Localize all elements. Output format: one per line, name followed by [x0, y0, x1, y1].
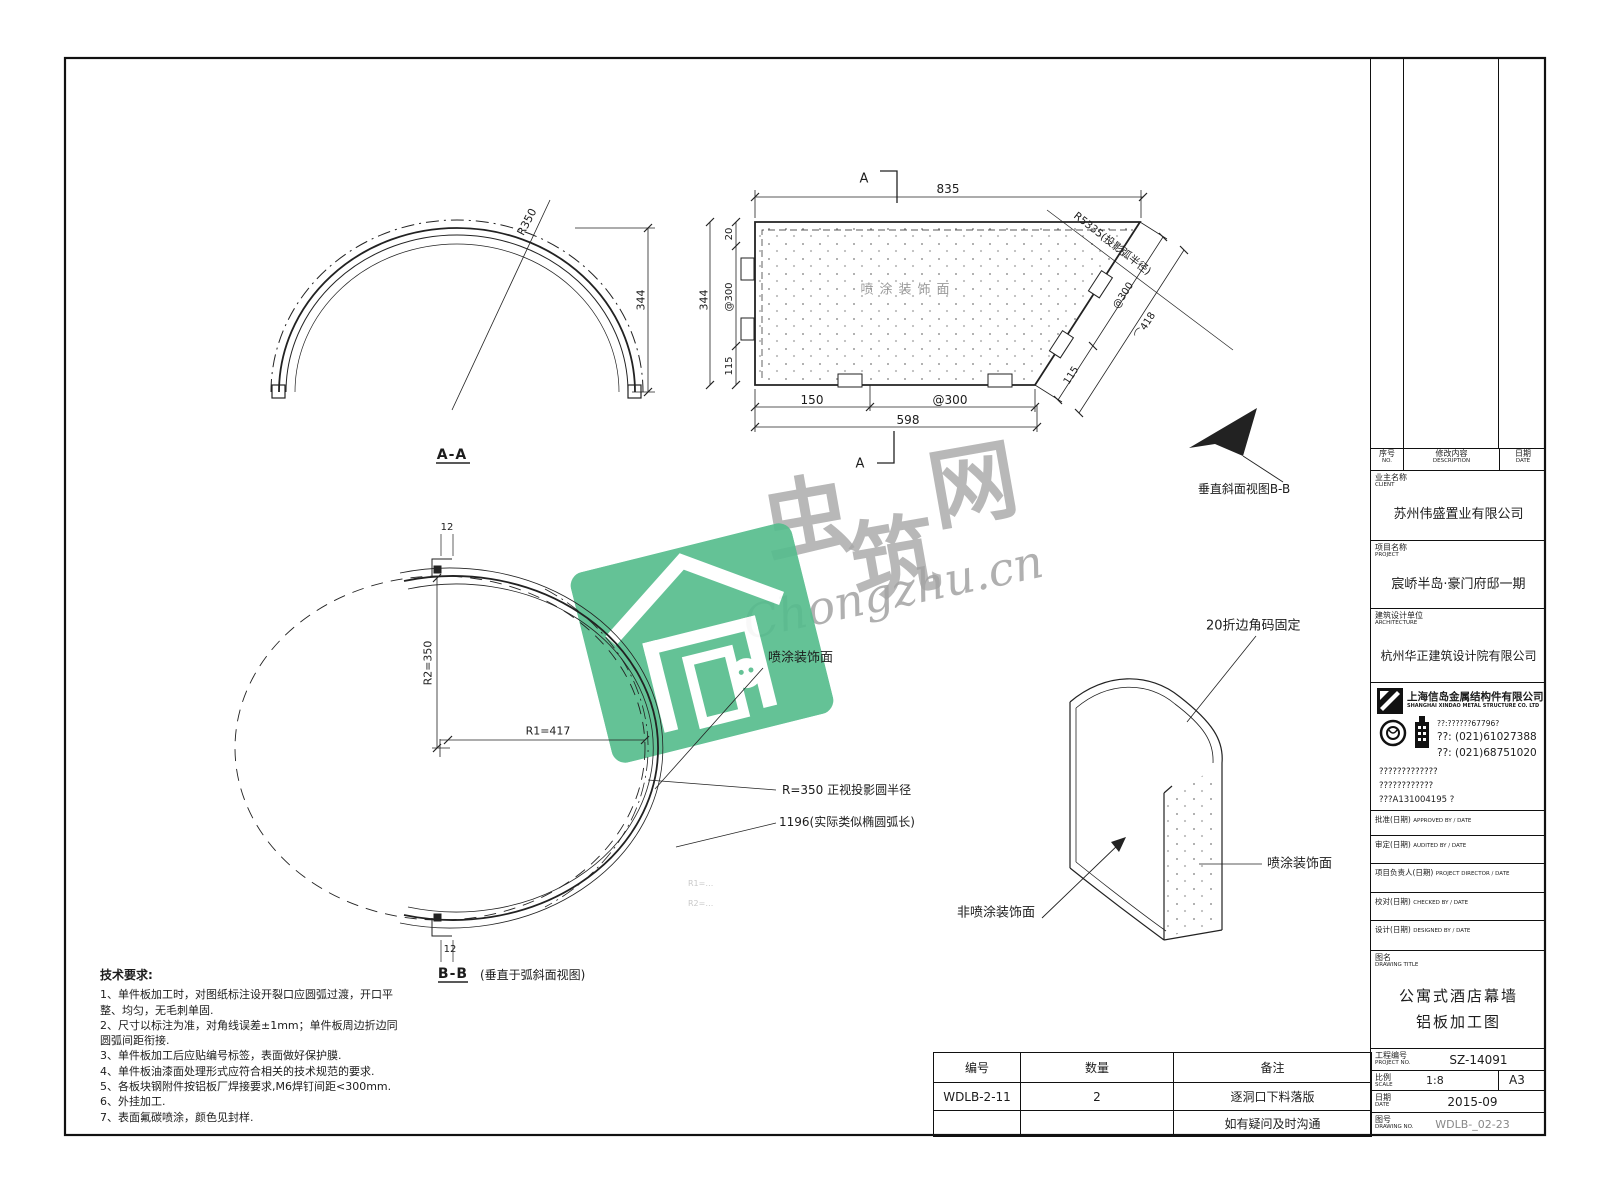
parts-header-qty: 数量 [1021, 1053, 1174, 1083]
title-block: 序号 NO. 修改内容 DESCRIPTION 日期 DATE 业主名称 CLI… [1370, 58, 1546, 1135]
bb-pointer-label: 垂直斜面视图B-B [1198, 483, 1290, 495]
client-cell: 业主名称 CLIENT 苏州伟盛置业有限公司 [1371, 470, 1546, 540]
note-line: 2、尺寸以标注为准，对角线误差±1mm；单件板周边折边同圆弧间距衔接. [100, 1018, 400, 1049]
bb-r1-dim: R1=417 [526, 726, 571, 737]
note-line: 5、各板块钢附件按铝板厂焊接要求,M6焊钉间距<300mm. [100, 1079, 400, 1094]
drawing-no-cell: 图号DRAWING NO. WDLB-_02-23 [1371, 1112, 1546, 1135]
note-line: 3、单件板加工后应贴编号标签，表面做好保护膜. [100, 1048, 400, 1063]
designed-row: 设计(日期) DESIGNED BY / DATE [1371, 920, 1546, 950]
view-direction-arrow [1189, 408, 1283, 482]
stamp-icon [1379, 719, 1407, 747]
approved-row: 批准(日期) APPROVED BY / DATE [1371, 810, 1546, 835]
plan-dim-at300-bottom: @300 [933, 394, 968, 406]
iso-fold-label: 20折边角码固定 [1206, 620, 1301, 633]
note-line: 1、单件板加工时，对图纸标注设开裂口应圆弧过渡，开口平整、均匀，无毛刺单固. [100, 987, 400, 1018]
date-cell: 日期DATE 2015-09 [1371, 1090, 1546, 1112]
plan-dim-20: 20 [725, 228, 735, 241]
project-director-row: 项目负责人(日期) PROJECT DIRECTOR / DATE [1371, 863, 1546, 892]
plan-section-marker-top: A [860, 173, 869, 186]
project-label: 项目名称 [1375, 543, 1546, 552]
bb-faint-note-2: R2=… [688, 900, 713, 908]
plan-dim-835: 835 [937, 183, 960, 195]
drawing-title-line1: 公寓式酒店幕墙 [1371, 985, 1546, 1006]
company-contact-4: ????????????? [1379, 767, 1438, 777]
bb-note-radius: R=350 正视投影圆半径 [782, 784, 911, 796]
plan-dim-598: 598 [897, 414, 920, 426]
plan-face-label: 喷涂装饰面 [860, 284, 955, 297]
parts-table: 编号 数量 备注 WDLB-2-11 2 逐洞口下料落版 如有疑问及时沟通 [933, 1052, 1372, 1137]
iso-coated-label: 喷涂装饰面 [1267, 858, 1332, 871]
client-label: 业主名称 [1375, 473, 1546, 482]
note-line: 6、外挂加工. [100, 1094, 400, 1109]
revision-col-line [1403, 58, 1404, 448]
table-row-qty: 2 [1021, 1083, 1174, 1111]
scale-cell: 比例SCALE 1:8 A3 [1371, 1070, 1546, 1090]
plan-dim-115-left: 115 [725, 356, 735, 375]
view-bb [235, 534, 776, 982]
date-value: 2015-09 [1385, 1095, 1560, 1109]
revision-col-line [1498, 58, 1499, 448]
company-tel: ??: (021)61027388 [1437, 731, 1537, 743]
checked-row: 校对(日期) CHECKED BY / DATE [1371, 892, 1546, 920]
technical-notes: 技术要求: 1、单件板加工时，对图纸标注设开裂口应圆弧过渡，开口平整、均匀，无毛… [100, 968, 400, 1125]
architecture-cell: 建筑设计单位 ARCHITECTURE 杭州华正建筑设计院有限公司 [1371, 608, 1546, 682]
plan-dim-at300-left: @300 [725, 282, 735, 311]
company-name: 上海信岛金属结构件有限公司 [1407, 689, 1544, 704]
company-fax: ??: (021)68751020 [1437, 747, 1537, 759]
bb-note-arc: 1196(实际类似椭圆弧长) [779, 816, 915, 828]
bb-faint-note-1: R1=… [688, 880, 713, 888]
scale-value: 1:8 [1426, 1074, 1444, 1087]
audited-row: 审定(日期) AUDITED BY / DATE [1371, 835, 1546, 863]
view-aa [271, 200, 655, 463]
client-value: 苏州伟盛置业有限公司 [1371, 503, 1546, 522]
company-contact-5: ???????????? [1379, 781, 1433, 791]
notes-title: 技术要求: [100, 968, 400, 983]
project-no-cell: 工程编号PROJECT NO. SZ-14091 [1371, 1048, 1546, 1070]
drawing-title-label: 图名 [1375, 953, 1546, 962]
iso-uncoated-label: 非喷涂装饰面 [957, 907, 1035, 920]
drawing-no-value: WDLB-_02-23 [1385, 1118, 1560, 1131]
bb-view-caption: (垂直于弧斜面视图) [480, 969, 585, 981]
project-cell: 项目名称 PROJECT 宸峤半岛·豪门府邸一期 [1371, 540, 1546, 608]
table-row-code: WDLB-2-11 [934, 1083, 1021, 1111]
sheet-size: A3 [1509, 1073, 1525, 1087]
building-icon [1413, 716, 1431, 748]
aa-height-dim: 344 [636, 290, 647, 311]
note-line: 7、表面氟碳喷涂，颜色见封样. [100, 1110, 400, 1125]
bb-view-title: B-B [438, 967, 468, 981]
company-cert-no: ???A131004195 ? [1379, 795, 1454, 805]
table-row-qty [1021, 1111, 1174, 1136]
bb-r2-dim: R2=350 [423, 641, 434, 686]
plan-dim-344: 344 [699, 290, 710, 311]
drawing-title-cell: 图名 DRAWING TITLE 公寓式酒店幕墙 铝板加工图 [1371, 950, 1546, 1048]
table-row-remark: 逐洞口下料落版 [1174, 1083, 1371, 1111]
revision-desc-label: 修改内容 [1404, 449, 1499, 458]
company-cell: 上海信岛金属结构件有限公司 SHANGHAI XINDAO METAL STRU… [1371, 682, 1546, 810]
revision-date-label: 日期 [1500, 449, 1546, 458]
drawing-title-line2: 铝板加工图 [1371, 1011, 1546, 1032]
parts-header-remark: 备注 [1174, 1053, 1371, 1083]
table-row-code [934, 1111, 1021, 1136]
revision-header: 序号 NO. 修改内容 DESCRIPTION 日期 DATE [1371, 448, 1546, 470]
project-value: 宸峤半岛·豪门府邸一期 [1371, 573, 1546, 592]
view-iso [1042, 636, 1262, 940]
architecture-label: 建筑设计单位 [1375, 611, 1546, 620]
bb-thickness-top: 12 [441, 523, 454, 533]
drawing-sheet: 虫 筑 网 Chongzhu.cn [0, 0, 1600, 1200]
company-logo [1377, 688, 1403, 714]
parts-header-code: 编号 [934, 1053, 1021, 1083]
revision-no-label: 序号 [1371, 449, 1403, 458]
project-no-value: SZ-14091 [1391, 1053, 1566, 1067]
company-contact-1: ??:??????67796? [1437, 719, 1499, 728]
plan-section-marker-bottom: A [856, 458, 865, 471]
bb-face-label: 喷涂装饰面 [768, 652, 833, 665]
table-row-remark: 如有疑问及时沟通 [1174, 1111, 1371, 1136]
note-line: 4、单件板油漆面处理形式应符合相关的技术规范的要求. [100, 1064, 400, 1079]
architecture-value: 杭州华正建筑设计院有限公司 [1371, 647, 1546, 664]
plan-dim-150: 150 [801, 394, 824, 406]
bb-thickness-bottom: 12 [444, 945, 457, 955]
aa-view-title: A-A [437, 448, 467, 462]
company-name-en: SHANGHAI XINDAO METAL STRUCTURE CO. LTD [1407, 703, 1539, 709]
